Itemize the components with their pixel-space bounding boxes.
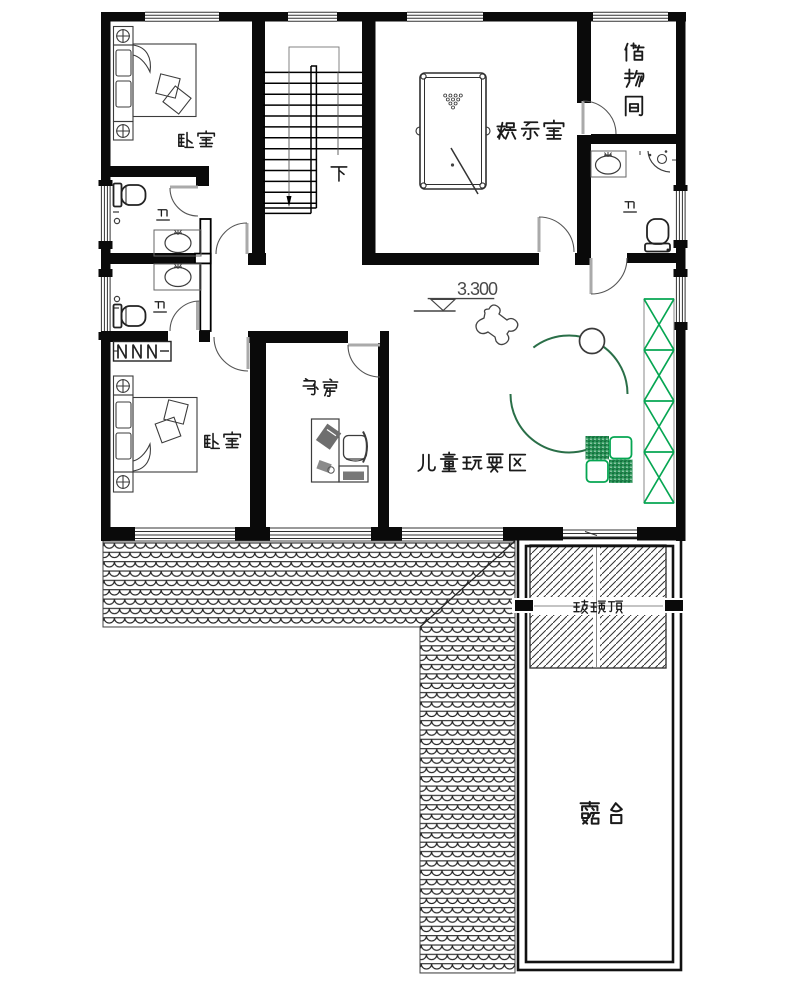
svg-text:3.300: 3.300 — [457, 279, 498, 299]
